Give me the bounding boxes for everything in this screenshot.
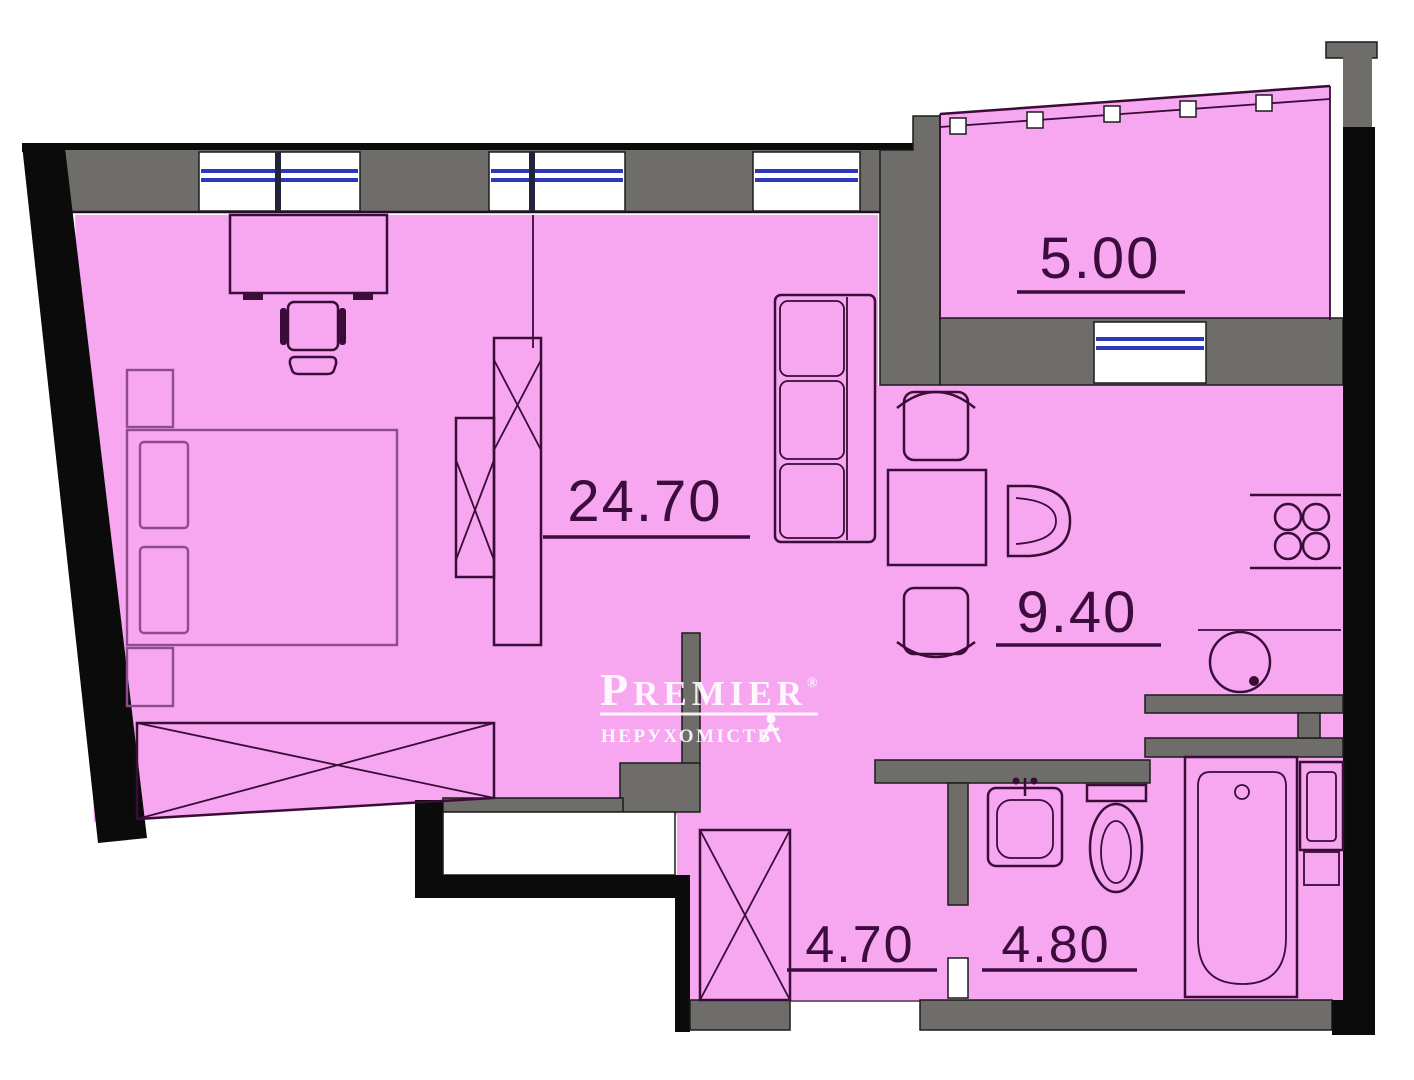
bathroom-top-wall: [875, 760, 1150, 783]
bath-door-jamb: [948, 958, 968, 998]
hall-left-wall: [675, 875, 690, 1032]
floor-plan-svg: 5.00 24.70 9.40 4.70 4.80 PREMIER® НЕРУХ…: [0, 0, 1414, 1080]
bottom-wall-left: [690, 1000, 790, 1030]
room-label-studio: 24.70: [567, 469, 722, 534]
watermark-brand-rest: REMIER: [633, 674, 807, 713]
right-wall-cap: [1326, 42, 1377, 58]
room-label-balcony: 5.00: [1040, 226, 1161, 291]
hall-partition-foot: [620, 763, 700, 812]
watermark-subtitle: НЕРУХОМІСТЬ: [601, 726, 773, 747]
bottom-wall-corner: [1332, 1000, 1375, 1035]
right-wall-column: [1343, 127, 1375, 1035]
window-3: [753, 152, 860, 211]
vent-wall-upper: [1145, 695, 1343, 713]
floor-plan: 5.00 24.70 9.40 4.70 4.80 PREMIER® НЕРУХ…: [0, 0, 1414, 1080]
kitchen-window: [1094, 322, 1206, 383]
room-label-hallway: 4.70: [805, 916, 914, 974]
notch-bottom-wall: [415, 875, 683, 898]
vent-wall-lower: [1145, 738, 1343, 757]
registered-icon: ®: [807, 676, 818, 691]
right-wall-top: [1343, 56, 1372, 129]
window-1: [199, 152, 360, 211]
bath-partition: [948, 783, 968, 905]
vent-connector: [1298, 713, 1320, 738]
floor-fills: [75, 86, 1343, 1002]
building-notch: [443, 812, 675, 875]
bottom-wall-right: [920, 1000, 1332, 1030]
balcony-left-wall: [880, 116, 940, 385]
watermark-brand-initial: P: [600, 664, 633, 715]
room-label-bathroom: 4.80: [1001, 916, 1110, 974]
room-label-kitchen: 9.40: [1017, 580, 1138, 645]
window-2: [489, 152, 625, 211]
